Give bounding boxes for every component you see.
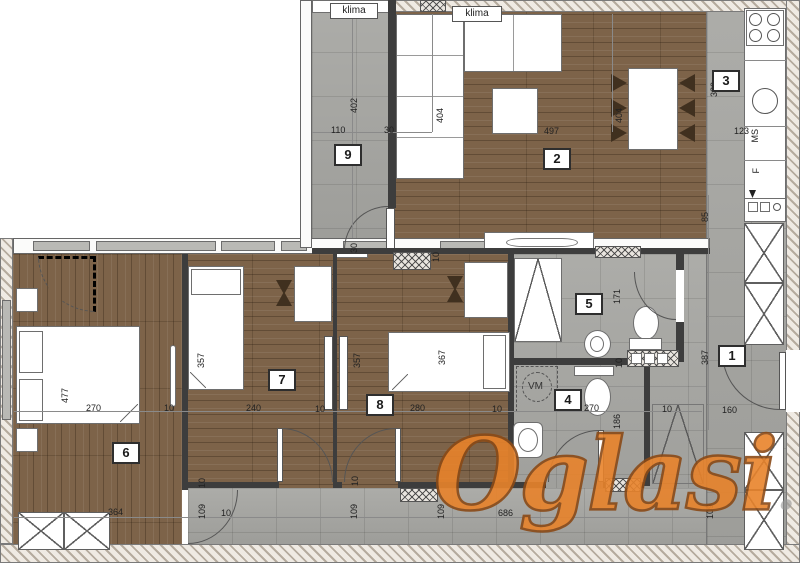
- window-left-wall: [2, 300, 11, 420]
- desk-room8: [464, 262, 508, 318]
- entrance-gap: [786, 350, 800, 412]
- hall-wardrobe-2: [744, 283, 784, 345]
- dim-bath5-height: 171: [612, 289, 622, 304]
- dim-bed8-height: 357: [352, 353, 362, 368]
- dim-hall-top: 85: [700, 212, 710, 222]
- dimline-terrace-h: [312, 132, 432, 133]
- room-label-6: 6: [112, 442, 140, 464]
- counter-divider-1: [744, 60, 786, 61]
- hall-cabinet-sq3: [657, 353, 668, 364]
- dishwasher-detail-1: [748, 202, 758, 212]
- tv-screen: [506, 238, 578, 247]
- hall-cabinet-sq2: [644, 353, 655, 364]
- dim-kitchen-width: 123: [734, 126, 749, 136]
- closet-panel-room8: [339, 336, 348, 410]
- dim-living-left: 404: [435, 108, 445, 123]
- wall-bottom-exterior: [0, 544, 800, 563]
- bed-double-pillow-2: [19, 379, 43, 421]
- dim-bath4-right: 10: [662, 404, 672, 414]
- radiator-room8-top: [393, 252, 431, 270]
- dim-living-width: 497: [544, 126, 559, 136]
- shower-cabin: [514, 258, 562, 342]
- closet-panel-room7: [324, 336, 333, 410]
- room-label-2: 2: [543, 148, 571, 170]
- bed7-fold: [190, 372, 206, 388]
- klima-label-left: klima: [330, 3, 378, 19]
- mirror-room6: [170, 345, 176, 407]
- hall-cabinet-sq1: [631, 353, 642, 364]
- dim-hall-bottom: 160: [722, 405, 737, 415]
- stove-burner-2: [767, 13, 780, 26]
- dim-bed7-right: 10: [315, 404, 325, 414]
- dim-terrace-b30: 30: [349, 243, 359, 253]
- dim-terrace-width: 110: [331, 125, 345, 135]
- dining-table: [628, 68, 678, 150]
- dim-corr-l10: 10: [197, 478, 207, 488]
- dim-terrace-wall: 30: [384, 125, 394, 135]
- dim-bath4-width: 270: [584, 403, 599, 413]
- wall-terrace-living-upper: [388, 0, 396, 208]
- dim-bed8-right: 10: [492, 404, 502, 414]
- room-label-7: 7: [268, 369, 296, 391]
- dim-wardrobe6: 364: [108, 507, 123, 517]
- ac-unit-right: [420, 0, 446, 12]
- watermark-main: Oglasi: [434, 415, 776, 533]
- wall-corridor-room7-b: [333, 482, 342, 488]
- room-label-8: 8: [366, 394, 394, 416]
- stove-burner-4: [767, 29, 780, 42]
- dim-corr-l10b: 10: [221, 508, 231, 518]
- wall-top-exterior: [386, 0, 800, 12]
- stove-burner-1: [749, 13, 762, 26]
- dimline-dining-v: [612, 14, 613, 132]
- coffee-table: [492, 88, 538, 134]
- dim-bed6-right: 10: [164, 403, 174, 413]
- nightstand-bottom: [16, 428, 38, 452]
- room-label-9: 9: [334, 144, 362, 166]
- bed8-fold: [392, 374, 408, 390]
- window-bedroom6-a: [33, 241, 90, 251]
- room-label-1: 1: [718, 345, 746, 367]
- dim-dining-depth: 404: [614, 108, 624, 123]
- counter-divider-3: [744, 160, 786, 161]
- dim-bed8-width: 280: [410, 403, 425, 413]
- bed7-pillow: [191, 269, 241, 295]
- entrance-door-leaf: [779, 352, 786, 410]
- dimline-terrace-v: [352, 14, 353, 238]
- dim-kitchen-f: F: [751, 168, 761, 174]
- wall-bath5-bath4: [512, 358, 644, 365]
- bed8-pillow: [483, 335, 506, 389]
- dim-corr-m109: 109: [349, 504, 359, 519]
- stove-burner-3: [749, 29, 762, 42]
- sofa-chaise: [396, 14, 464, 179]
- window-bedroom7-a: [221, 241, 275, 251]
- dim-corr-l109: 109: [197, 504, 207, 519]
- dim-bed6-width: 270: [86, 403, 101, 413]
- dimline-living-v: [432, 14, 433, 132]
- desk-room7: [294, 266, 332, 322]
- dishwasher-knob: [773, 203, 781, 211]
- room-label-4: 4: [554, 389, 582, 411]
- washing-machine-label: VM: [528, 381, 543, 392]
- toilet-bath5-tank: [629, 338, 662, 350]
- klima-label-right: klima: [452, 6, 502, 22]
- nightstand-top: [16, 288, 38, 312]
- bed-double-fold: [120, 404, 138, 422]
- toilet-bath4-tank: [574, 366, 614, 376]
- dimline-hall-v: [708, 195, 709, 430]
- dim-terrace-height: 402: [349, 98, 359, 113]
- watermark-suffix: .rs: [776, 455, 800, 523]
- dim-hall-height: 387: [700, 350, 710, 365]
- counter-divider-2: [744, 126, 786, 127]
- dim-bed8-bed: 367: [437, 350, 447, 365]
- sofa-top-section: [464, 14, 562, 72]
- dim-bath-wall: 10: [614, 358, 624, 368]
- bed-double-pillow-1: [19, 331, 43, 373]
- radiator-living-hall: [595, 246, 641, 258]
- bath5-door-gap: [676, 270, 684, 322]
- terrace-left-railing: [300, 0, 312, 248]
- sink-bath5-basin: [590, 336, 604, 352]
- dim-bed7-height: 357: [196, 353, 206, 368]
- dim-corr-m10: 10: [350, 476, 360, 486]
- dim-kitchen-ms: MS: [750, 129, 760, 143]
- dim-bed6-height: 477: [60, 388, 70, 403]
- room-label-3: 3: [712, 70, 740, 92]
- radiator-corridor-left: [400, 488, 438, 502]
- dim-bed7-width: 240: [246, 403, 261, 413]
- dim-room8-t10: 10: [431, 252, 441, 262]
- wall-room7-room8: [333, 254, 337, 482]
- kitchen-sink: [752, 88, 778, 114]
- room-label-5: 5: [575, 293, 603, 315]
- dishwasher-detail-2: [760, 202, 770, 212]
- watermark: Oglasi.rs: [434, 424, 800, 524]
- hall-wardrobe-1: [744, 223, 784, 283]
- window-bedroom6-b: [96, 241, 216, 251]
- floor-plan: VM 110 402 30 30 404 497 404 320 123 MS …: [0, 0, 800, 576]
